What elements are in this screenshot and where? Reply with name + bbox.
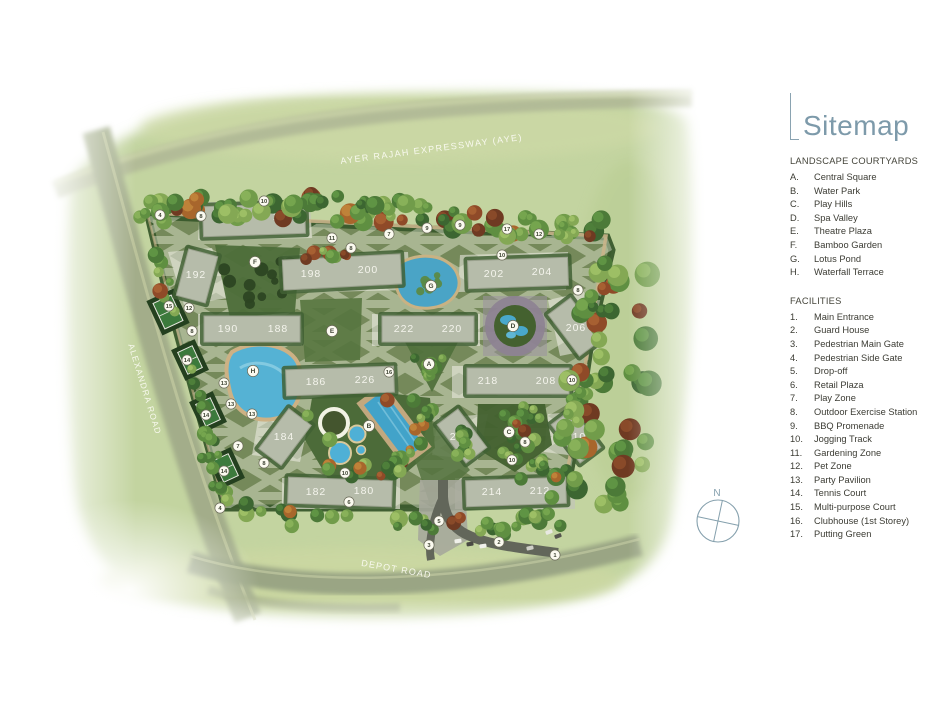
legend-item: 15.Multi-purpose Court	[790, 501, 943, 515]
svg-text:15: 15	[166, 304, 173, 310]
facility-marker-11: 11	[327, 233, 337, 243]
facility-marker-9: 9	[422, 223, 432, 233]
building-block-186-226: 186226	[281, 362, 398, 400]
facility-marker-2: 2	[494, 537, 504, 547]
legend-item-label: Central Square	[814, 171, 943, 185]
legend-item-key: 9.	[790, 420, 814, 434]
legend-panel: Sitemap LANDSCAPE COURTYARDSA.Central Sq…	[790, 93, 943, 542]
building-number: 220	[442, 323, 463, 335]
building-block-190-188: 190188	[200, 312, 304, 346]
legend-item-label: Putting Green	[814, 528, 943, 542]
legend-item-key: E.	[790, 225, 814, 239]
legend-item-label: Pedestrian Side Gate	[814, 352, 943, 366]
legend-item-key: 5.	[790, 365, 814, 379]
legend-item: H.Waterfall Terrace	[790, 266, 943, 280]
legend-list: A.Central SquareB.Water ParkC.Play Hills…	[790, 171, 943, 280]
legend-item-label: Multi-purpose Court	[814, 501, 943, 515]
legend-item: G.Lotus Pond	[790, 253, 943, 267]
legend-item: A.Central Square	[790, 171, 943, 185]
legend-item-key: 4.	[790, 352, 814, 366]
legend-item-key: 8.	[790, 406, 814, 420]
svg-text:C: C	[507, 429, 512, 436]
courtyard-marker-H: H	[247, 365, 258, 376]
svg-text:G: G	[428, 283, 433, 290]
svg-text:11: 11	[329, 236, 336, 242]
legend-item-label: Theatre Plaza	[814, 225, 943, 239]
legend-item-key: 1.	[790, 311, 814, 325]
facility-marker-17: 17	[502, 224, 512, 234]
legend-item: 14.Tennis Court	[790, 487, 943, 501]
facility-marker-4: 4	[155, 210, 165, 220]
title-bracket-icon	[790, 93, 799, 140]
legend-item-key: 12.	[790, 460, 814, 474]
legend-item-key: 17.	[790, 528, 814, 542]
svg-text:F: F	[253, 259, 257, 266]
legend-item-key: 14.	[790, 487, 814, 501]
building-number: 204	[532, 266, 553, 278]
svg-text:13: 13	[249, 412, 256, 418]
legend-item-label: Play Hills	[814, 198, 943, 212]
legend-item: C.Play Hills	[790, 198, 943, 212]
legend-item: 5.Drop-off	[790, 365, 943, 379]
facility-marker-12: 12	[184, 303, 194, 313]
svg-text:10: 10	[342, 471, 348, 477]
legend-item-label: Jogging Track	[814, 433, 943, 447]
svg-text:14: 14	[221, 469, 228, 475]
legend-item: 1.Main Entrance	[790, 311, 943, 325]
facility-marker-9: 9	[455, 220, 465, 230]
legend-item-label: Retail Plaza	[814, 379, 943, 393]
legend-item-key: 3.	[790, 338, 814, 352]
svg-text:12: 12	[536, 232, 542, 238]
legend-item-label: Outdoor Exercise Station	[814, 406, 943, 420]
legend-item-key: C.	[790, 198, 814, 212]
svg-text:13: 13	[228, 402, 235, 408]
facility-marker-16: 16	[384, 367, 394, 377]
facility-marker-14: 14	[201, 410, 211, 420]
legend-title-row: Sitemap	[790, 93, 943, 140]
legend-item: 10.Jogging Track	[790, 433, 943, 447]
facility-marker-15: 15	[164, 301, 174, 311]
facility-marker-13: 13	[247, 409, 257, 419]
legend-item-key: H.	[790, 266, 814, 280]
facility-marker-7: 7	[233, 441, 243, 451]
facility-marker-8: 8	[346, 243, 356, 253]
legend-item-key: 6.	[790, 379, 814, 393]
svg-text:10: 10	[499, 253, 505, 259]
svg-text:10: 10	[509, 458, 515, 464]
legend-item-key: D.	[790, 212, 814, 226]
legend-item-label: Waterfall Terrace	[814, 266, 943, 280]
svg-text:13: 13	[221, 381, 228, 387]
facility-marker-1: 1	[550, 550, 560, 560]
legend-item: 12.Pet Zone	[790, 460, 943, 474]
svg-text:D: D	[511, 323, 516, 330]
svg-text:H: H	[251, 368, 256, 375]
compass-north-label: N	[713, 488, 720, 499]
facility-marker-7: 7	[384, 229, 394, 239]
legend-item-label: Play Zone	[814, 392, 943, 406]
legend-section-heading: FACILITIES	[790, 296, 943, 306]
legend-item-label: Clubhouse (1st Storey)	[814, 515, 943, 529]
svg-text:A: A	[427, 361, 432, 368]
facility-marker-13: 13	[226, 399, 236, 409]
building-block-218-208: 218208	[463, 364, 573, 398]
legend-item: 8.Outdoor Exercise Station	[790, 406, 943, 420]
building-number: 188	[268, 323, 289, 335]
svg-text:10: 10	[569, 378, 575, 384]
legend-item-key: B.	[790, 185, 814, 199]
legend-item-label: Main Entrance	[814, 311, 943, 325]
svg-text:E: E	[330, 328, 335, 335]
legend-item: 6.Retail Plaza	[790, 379, 943, 393]
facility-marker-10: 10	[497, 250, 507, 260]
building-number: 202	[484, 268, 505, 280]
legend-item: D.Spa Valley	[790, 212, 943, 226]
svg-text:10: 10	[261, 199, 267, 205]
legend-item-label: Lotus Pond	[814, 253, 943, 267]
legend-item-label: Guard House	[814, 324, 943, 338]
page-title: Sitemap	[803, 113, 909, 140]
legend-item-label: Pet Zone	[814, 460, 943, 474]
legend-item-key: 2.	[790, 324, 814, 338]
legend-item-key: 10.	[790, 433, 814, 447]
facility-marker-10: 10	[567, 375, 577, 385]
facility-marker-6: 6	[344, 497, 354, 507]
facility-marker-8: 8	[573, 285, 583, 295]
legend-section-heading: LANDSCAPE COURTYARDS	[790, 156, 943, 166]
legend-item-key: A.	[790, 171, 814, 185]
facility-marker-10: 10	[340, 468, 350, 478]
facility-marker-4: 4	[215, 503, 225, 513]
legend-item: 2.Guard House	[790, 324, 943, 338]
legend-item-key: 15.	[790, 501, 814, 515]
building-number: 192	[186, 269, 207, 281]
legend-item-key: 13.	[790, 474, 814, 488]
legend-item-key: F.	[790, 239, 814, 253]
legend-item: 16.Clubhouse (1st Storey)	[790, 515, 943, 529]
courtyard-marker-F: F	[249, 256, 260, 267]
building-number: 198	[301, 268, 322, 280]
building-number: 226	[355, 374, 376, 386]
legend-item-label: Pedestrian Main Gate	[814, 338, 943, 352]
legend-sections: LANDSCAPE COURTYARDSA.Central SquareB.Wa…	[790, 156, 943, 542]
courtyard-marker-G: G	[425, 280, 436, 291]
legend-item-key: 7.	[790, 392, 814, 406]
svg-text:14: 14	[184, 358, 191, 364]
svg-text:14: 14	[203, 413, 210, 419]
legend-item-label: BBQ Promenade	[814, 420, 943, 434]
facility-marker-8: 8	[187, 326, 197, 336]
building-number: 206	[566, 322, 587, 334]
legend-item-label: Spa Valley	[814, 212, 943, 226]
facility-marker-5: 5	[434, 516, 444, 526]
building-number: 214	[482, 486, 503, 498]
legend-item: B.Water Park	[790, 185, 943, 199]
legend-item: 17.Putting Green	[790, 528, 943, 542]
legend-list: 1.Main Entrance2.Guard House3.Pedestrian…	[790, 311, 943, 542]
legend-item-label: Party Pavilion	[814, 474, 943, 488]
legend-item: 4.Pedestrian Side Gate	[790, 352, 943, 366]
building-number: 184	[274, 431, 295, 443]
building-block-202-204: 202204	[463, 253, 572, 293]
facility-marker-8: 8	[520, 437, 530, 447]
building-number: 222	[394, 323, 415, 335]
legend-item-label: Tennis Court	[814, 487, 943, 501]
legend-item-label: Bamboo Garden	[814, 239, 943, 253]
legend-item-label: Drop-off	[814, 365, 943, 379]
facility-marker-8: 8	[259, 458, 269, 468]
courtyard-marker-A: A	[423, 358, 434, 369]
svg-text:B: B	[367, 423, 372, 430]
svg-text:16: 16	[386, 370, 393, 376]
courtyard-marker-C: C	[503, 426, 514, 437]
legend-item: F.Bamboo Garden	[790, 239, 943, 253]
legend-item-label: Gardening Zone	[814, 447, 943, 461]
svg-text:7: 7	[387, 232, 390, 238]
legend-item: 11.Gardening Zone	[790, 447, 943, 461]
facility-marker-3: 3	[424, 540, 434, 550]
facility-marker-10: 10	[259, 196, 269, 206]
facility-marker-10: 10	[507, 455, 517, 465]
svg-text:7: 7	[236, 444, 239, 450]
building-number: 208	[536, 375, 557, 387]
building-number: 180	[354, 485, 375, 497]
facility-marker-12: 12	[534, 229, 544, 239]
facility-marker-14: 14	[219, 466, 229, 476]
legend-item: 7.Play Zone	[790, 392, 943, 406]
legend-item-key: G.	[790, 253, 814, 267]
svg-text:12: 12	[186, 306, 192, 312]
courtyard-marker-E: E	[326, 325, 337, 336]
facility-marker-8: 8	[196, 211, 206, 221]
legend-item: 9.BBQ Promenade	[790, 420, 943, 434]
legend-item: E.Theatre Plaza	[790, 225, 943, 239]
legend-item: 13.Party Pavilion	[790, 474, 943, 488]
courtyard-marker-B: B	[363, 420, 374, 431]
building-number: 186	[306, 376, 327, 388]
building-number: 218	[478, 375, 499, 387]
building-number: 190	[218, 323, 239, 335]
legend-item: 3.Pedestrian Main Gate	[790, 338, 943, 352]
legend-item-key: 16.	[790, 515, 814, 529]
legend-item-key: 11.	[790, 447, 814, 461]
facility-marker-14: 14	[182, 355, 192, 365]
legend-item-label: Water Park	[814, 185, 943, 199]
building-block-222-220: 222220	[378, 312, 478, 346]
facility-marker-13: 13	[219, 378, 229, 388]
building-number: 182	[306, 486, 327, 498]
courtyard-marker-D: D	[507, 320, 518, 331]
svg-text:2: 2	[497, 540, 500, 546]
building-number: 200	[358, 264, 379, 276]
svg-text:17: 17	[504, 227, 510, 233]
